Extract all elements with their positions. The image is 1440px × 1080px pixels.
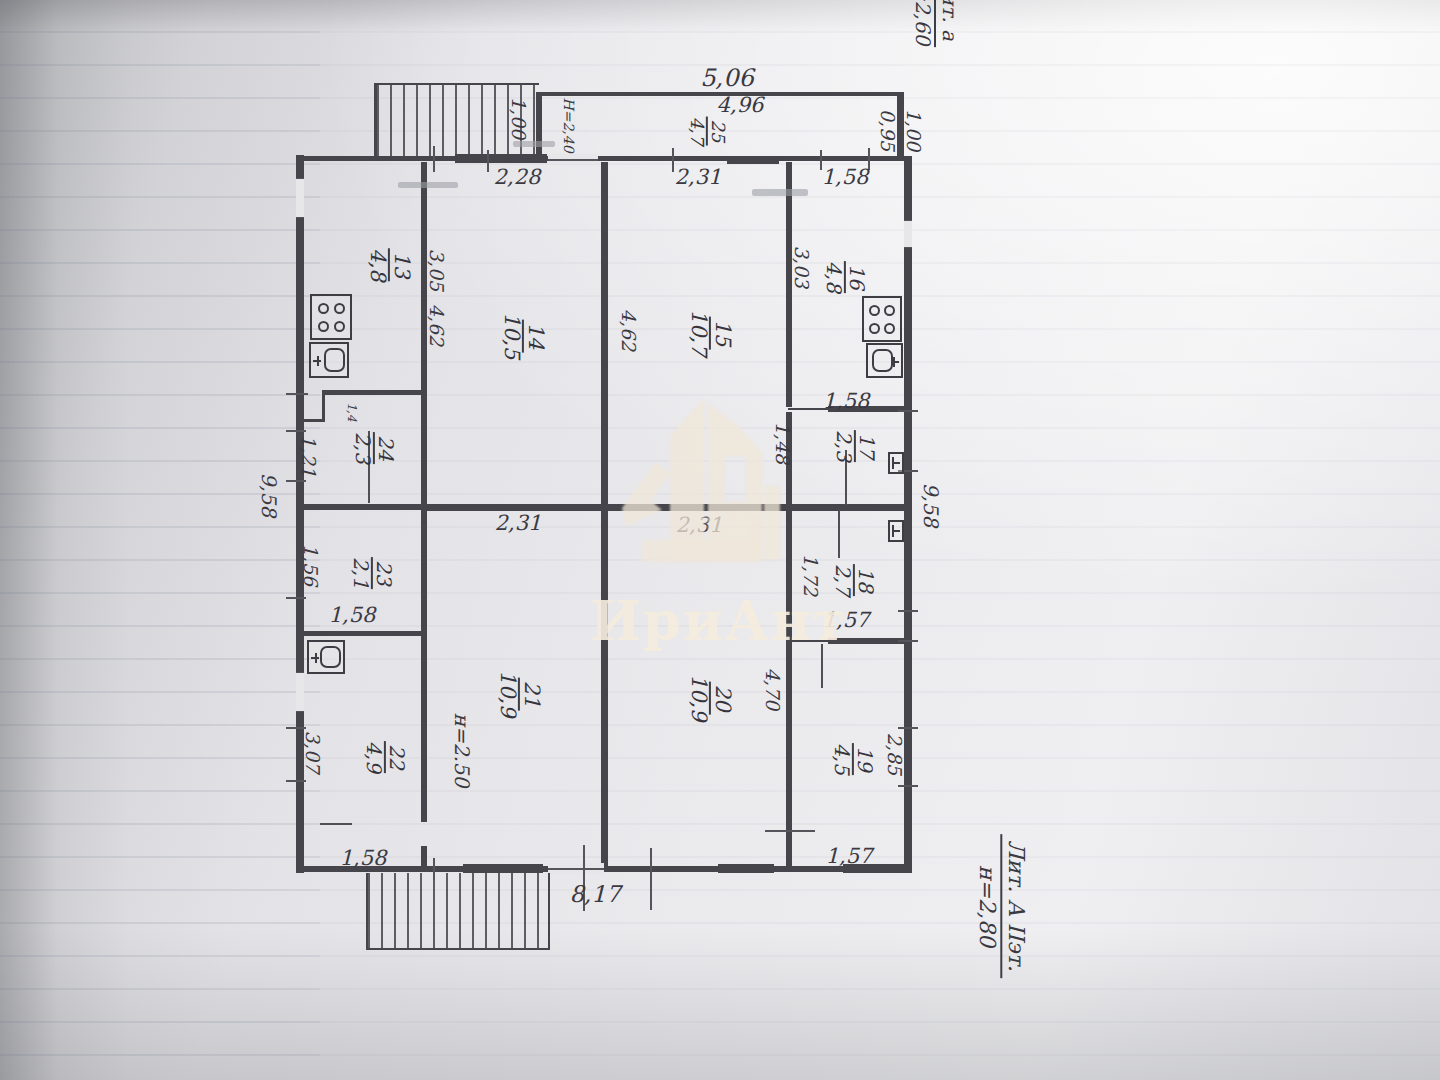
stove-icon [862,296,902,342]
room-label-23: 232,1 [350,557,394,589]
door-threshold [548,868,604,870]
room-label-24: 242,3 [352,432,396,464]
dimension-tick [286,597,306,599]
dimension-label: 9,58 [919,483,943,528]
wall [322,390,325,421]
tap-icon [313,360,321,362]
tap-icon [311,657,319,659]
burner-icon [884,323,895,334]
sink-icon [309,342,349,378]
dimension-tick [898,610,918,612]
dimension-label: 1,58 [822,165,869,189]
dimension-tick [286,480,306,482]
room-label-20: 2010,9 [687,675,733,722]
dimension-tick [898,640,918,642]
burner-icon [318,303,329,314]
sink-icon [866,343,903,378]
dimension-label: Н=2,40 [561,97,577,152]
door-leaf [838,510,840,558]
toilet-mark [892,457,894,469]
dimension-label: 2,85 [884,733,906,775]
toilet-icon [888,452,904,474]
room-number: 19 [852,743,875,774]
dimension-label: 1,58 [340,846,387,870]
dimension-label: 3,07 [302,731,324,773]
dimension-label: 4,62 [426,304,448,346]
dimension-tick [650,848,652,910]
dimension-label: 4,70 [762,668,784,710]
wall [300,631,425,636]
room-number: 25 [706,117,727,146]
dimension-tick [765,830,815,832]
door-leaf [320,823,352,825]
dimension-label: 1,57 [826,844,873,868]
burner-icon [334,303,345,314]
iriant-logo-watermark [612,390,792,590]
dimension-label: 0,95 [877,109,899,151]
room-area: 2,1 [350,557,370,589]
room-label-16: 164,8 [823,261,867,293]
dimension-label: 5,06 [700,64,753,92]
toilet-icon [888,520,904,542]
room-label-14: 1410,5 [500,313,546,360]
dimension-tick [286,780,306,782]
wall [300,419,325,422]
room-area: 10,9 [496,671,517,718]
window-mark [904,220,912,248]
dimension-tick [286,430,306,432]
room-number: 15 [709,317,733,350]
dimension-label: 1,58 [329,603,376,627]
room-label-13: 134,8 [366,248,412,281]
room-label-19: 194,5 [831,743,875,775]
wall [718,864,774,873]
burner-icon [884,305,895,316]
door-threshold [548,159,598,161]
room-area: 4,8 [823,261,843,293]
wall [790,504,906,510]
dimension-label: 3,05 [426,249,448,291]
note-bottom-right-liter: Лит. А IIэт. [1000,834,1029,978]
wall [463,864,543,873]
room-number: 13 [388,249,412,282]
smudge-mark [398,182,458,188]
room-area: 2,3 [833,430,853,462]
sink-icon [307,640,345,674]
room-area: 10,9 [687,675,708,722]
dimension-tick [898,410,918,412]
burner-icon [869,323,880,334]
room-area: 4,7 [687,117,705,146]
iriant-watermark-text: ИриАнт [590,589,848,653]
sink-basin [324,348,345,372]
dimension-label: 4,96 [717,93,764,117]
dimension-label: н=2.50 [450,713,474,788]
room-label-22: 224,9 [363,741,407,773]
room-number: 24 [373,432,396,463]
sink-basin [872,349,893,372]
dimension-label: 1,4 [345,402,359,421]
dimension-label: 1,00 [508,97,530,139]
dimension-label: 1,21 [298,435,320,477]
room-number: 17 [854,430,877,461]
wall [300,504,425,510]
burner-icon [869,305,880,316]
room-area: 10,7 [687,310,708,357]
stove-burners [315,299,347,335]
room-area: 2,3 [352,432,372,464]
dimension-label: 3,03 [791,246,813,288]
dimension-label: 4,62 [618,309,640,351]
room-area: 4,8 [366,248,387,281]
note-bottom-right-height: н=2,80 [975,865,1000,947]
dimension-tick [898,785,918,787]
stove-icon [310,294,352,340]
wall [727,156,779,164]
note-top-left: Лит. а н=2,60 [911,0,961,47]
room-number: 21 [518,678,542,711]
room-label-17: 172,3 [833,430,877,462]
window-mark [296,672,304,712]
dimension-label: 1,58 [823,389,870,413]
dimension-label: 8,17 [569,881,620,907]
tap-icon [891,361,899,363]
wall [601,162,608,868]
dimension-tick [487,150,489,172]
room-label-25: 254,7 [687,117,727,146]
dimension-label: 9,58 [257,473,281,518]
dimension-tick [433,858,435,880]
dimension-tick [898,727,918,729]
smudge-mark [513,141,555,147]
room-number: 14 [522,320,546,353]
sink-basin [320,646,341,668]
toilet-mark [892,525,894,537]
room-label-21: 2110,9 [496,671,542,718]
wall [421,846,427,870]
room-number: 18 [853,564,876,595]
smudge-mark [752,189,808,196]
note-top-left-liter: Лит. а [934,0,961,47]
note-bottom-right: Лит. А IIэт. н=2,80 [975,834,1030,978]
dimension-tick [286,393,308,395]
staircase-bottom [366,873,550,950]
dimension-label: 1,00 [903,109,925,151]
dimension-label: 2,28 [494,165,541,189]
room-number: 20 [709,682,733,715]
room-number: 16 [844,261,867,292]
note-top-left-height: н=2,60 [911,0,934,45]
room-label-15: 1510,7 [687,310,733,357]
dimension-tick [433,146,435,172]
burner-icon [334,321,345,332]
dimension-label: 1,56 [300,544,322,586]
dimension-label: 2,31 [675,165,722,189]
stove-burners [867,301,897,337]
room-number: 23 [371,557,394,588]
room-area: 4,5 [831,743,851,775]
dimension-tick [286,727,306,729]
window-mark [296,178,304,218]
burner-icon [318,321,329,332]
dimension-label: 2,31 [495,511,542,535]
room-area: 4,9 [363,741,383,773]
room-area: 10,5 [500,313,521,360]
photo-background: 134,81410,51510,7164,8172,3182,7194,5201… [0,0,1440,1080]
wall [323,390,425,395]
room-number: 22 [384,741,407,772]
